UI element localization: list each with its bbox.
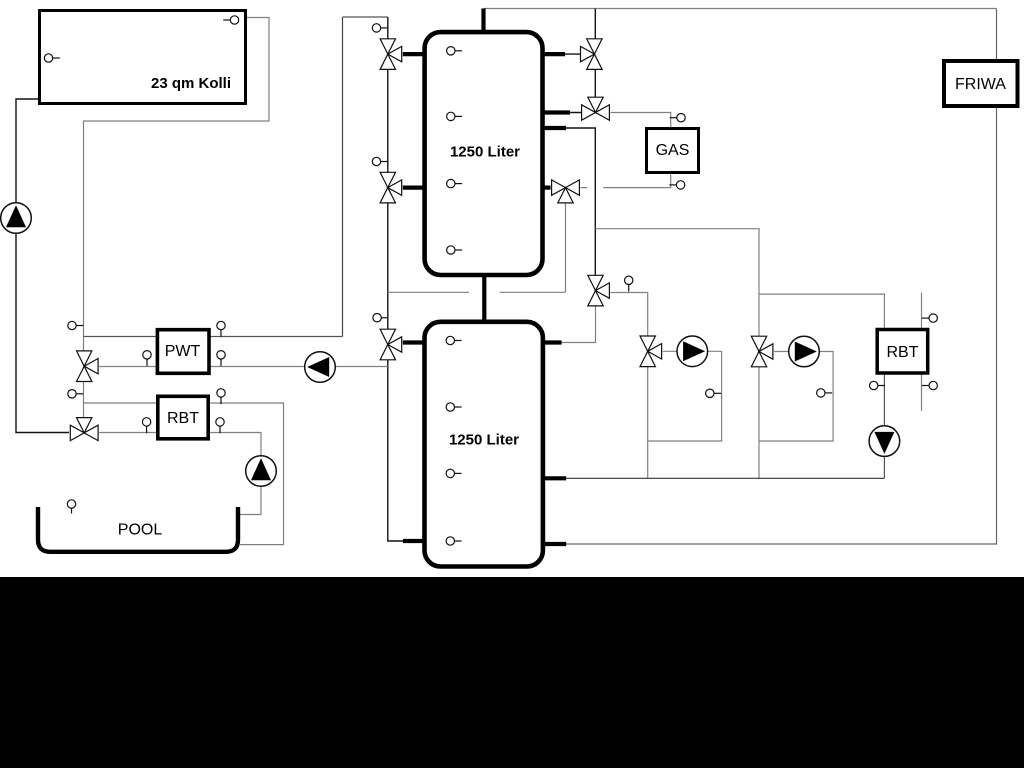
svg-text:PWT: PWT: [165, 343, 201, 360]
svg-text:GAS: GAS: [656, 142, 690, 159]
svg-text:1250 Liter: 1250 Liter: [450, 144, 520, 161]
svg-text:FRIWA: FRIWA: [955, 76, 1006, 93]
svg-text:POOL: POOL: [118, 522, 163, 539]
svg-text:RBT: RBT: [887, 344, 919, 361]
svg-text:23 qm Kolli: 23 qm Kolli: [151, 75, 231, 92]
svg-text:RBT: RBT: [167, 410, 199, 427]
svg-text:1250 Liter: 1250 Liter: [449, 432, 519, 449]
